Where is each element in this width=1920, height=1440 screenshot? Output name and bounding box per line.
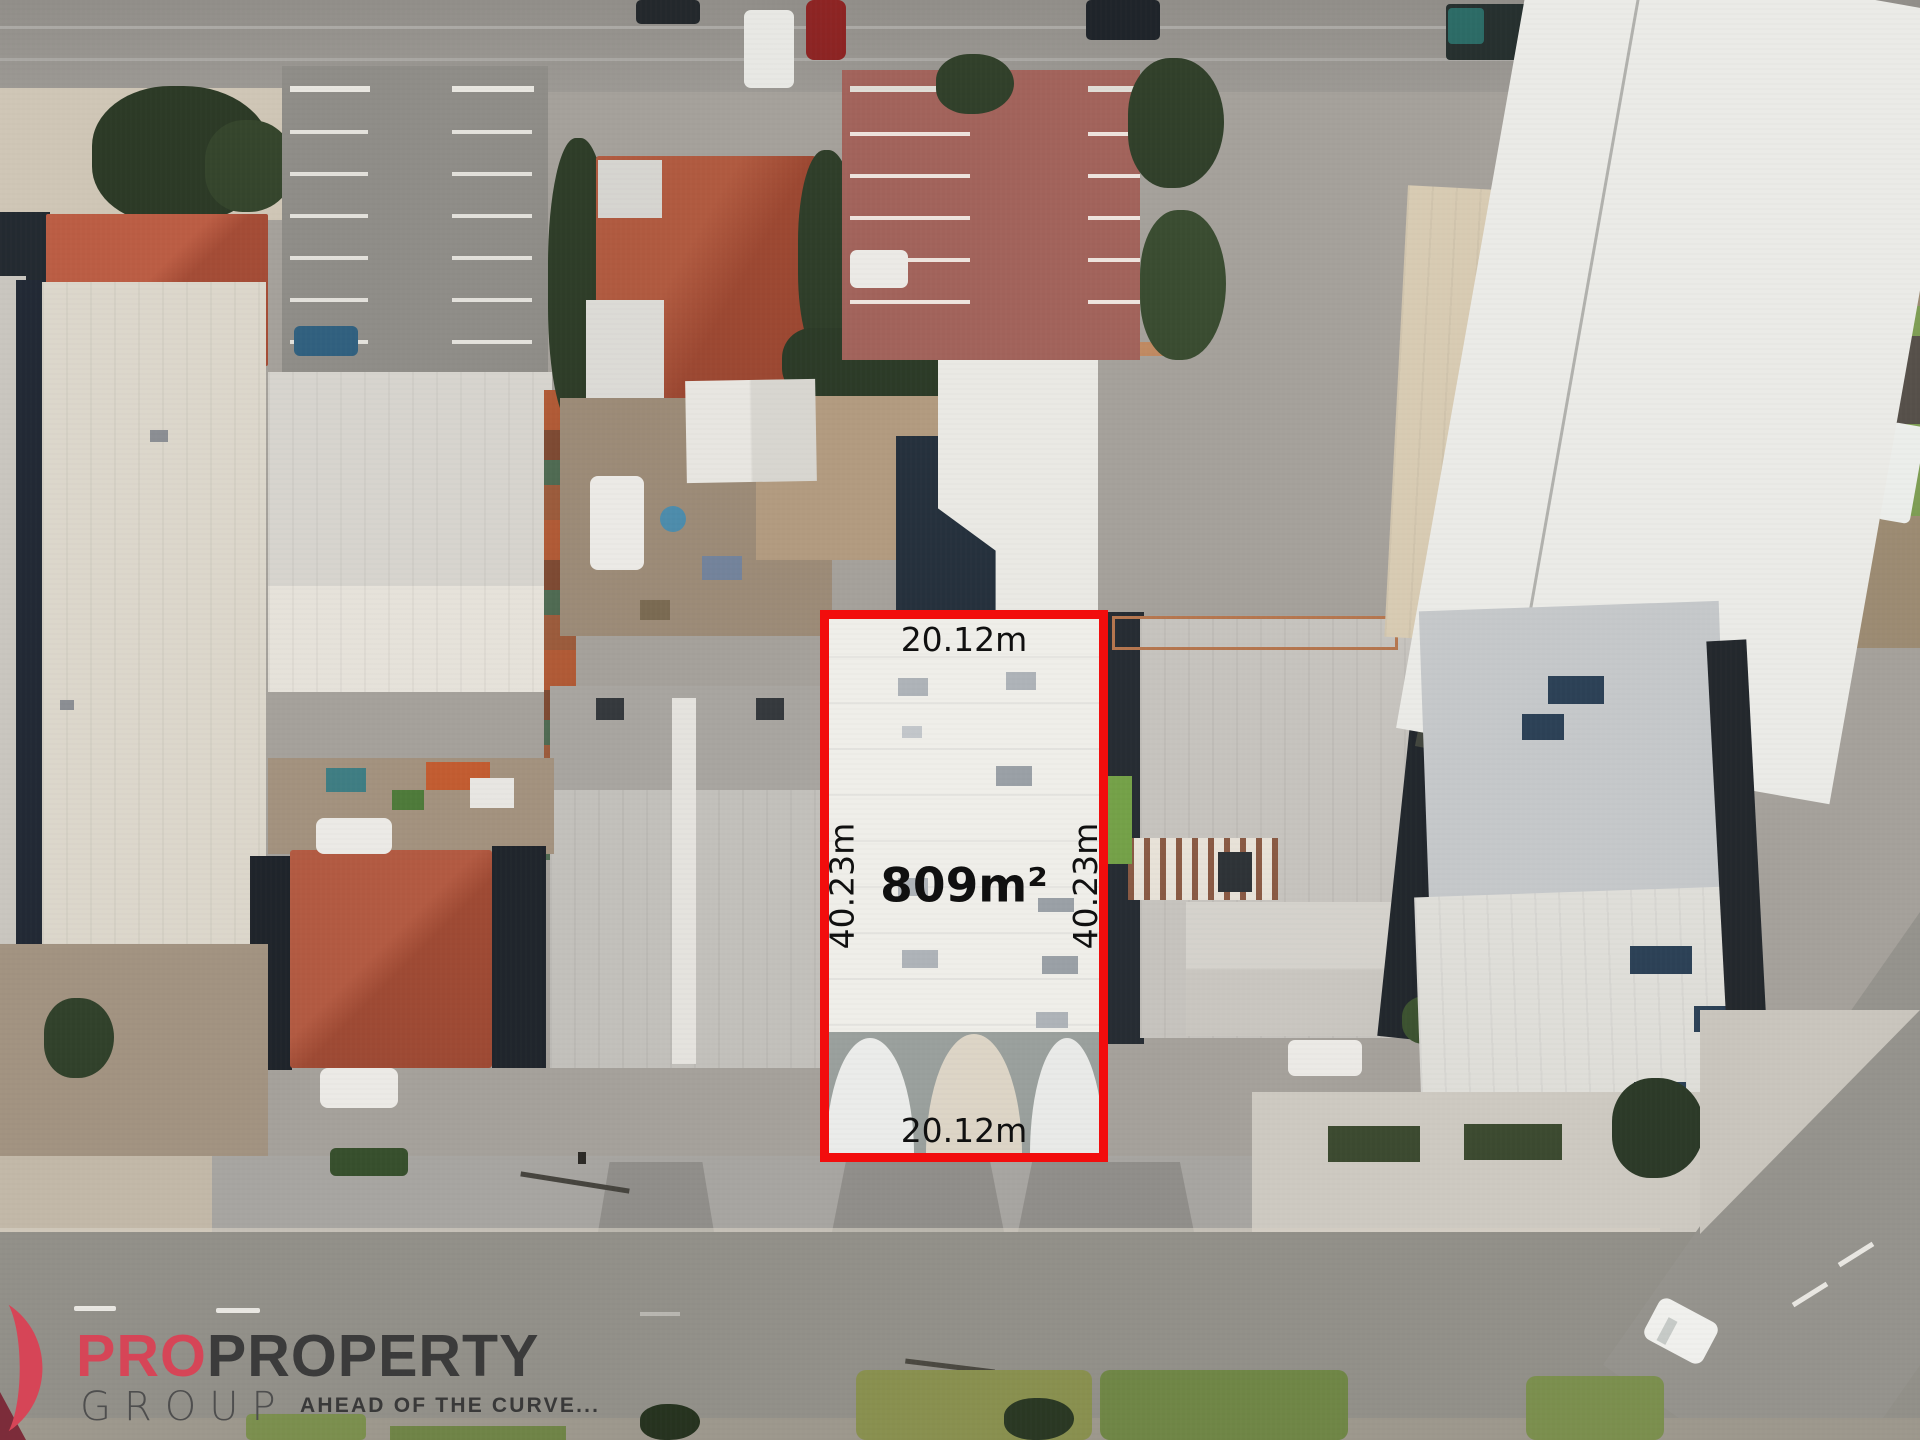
power-pole [578,1152,586,1164]
brand-swoosh-icon [0,1290,52,1440]
road-dash [216,1308,260,1313]
white-car [320,1068,398,1108]
grass-island [390,1426,566,1440]
yard-clutter [640,600,670,620]
roof-vent [756,698,784,720]
ladder-stripe-roof [1128,838,1278,900]
tile-roof [290,850,492,1068]
grass-island [1526,1376,1664,1440]
pool-trampoline [660,506,686,532]
brand-property-text: PROPERTY [207,1323,540,1389]
dimension-label-top: 20.12m [829,620,1099,659]
dimension-label-right: 40.23m [1067,823,1106,950]
road-dash [640,1312,680,1316]
aerial-photo: 20.12m 20.12m 40.23m 40.23m 809m² PROPRO… [0,0,1920,1440]
tree-canopy [1128,58,1224,188]
white-car [850,250,908,288]
roof-vent [60,700,74,710]
garage-gable-roof [685,379,817,483]
solar-panel [1522,714,1564,740]
roof-shadow [492,846,546,1068]
dirt-yard [0,944,268,1160]
white-car [1288,1040,1362,1076]
parking-stripes [452,92,532,358]
dimension-label-left: 40.23m [823,823,862,950]
brand-pro-text: PRO [76,1323,207,1389]
property-boundary-outline: 20.12m 20.12m 40.23m 40.23m 809m² [820,610,1108,1162]
sidewalk-beige [0,1156,212,1232]
warehouse-roof [42,282,266,946]
brand-wordmark: PROPROPERTY [76,1322,539,1390]
warehouse-shadow-stripe [16,280,44,946]
truck-cab [1448,8,1484,44]
area-label: 809m² [880,859,1048,914]
brand-tagline: AHEAD OF THE CURVE... [300,1394,600,1418]
driveway-apron [1018,1162,1194,1232]
tree-canopy [1140,210,1226,360]
white-van [590,476,644,570]
solar-panel [1630,946,1692,974]
tree-canopy [1004,1398,1074,1440]
yard-clutter [470,778,514,808]
terracotta-trim [1112,616,1398,650]
warehouse-roof-blue-tone [1419,601,1729,911]
white-van [744,10,794,88]
white-car [316,818,392,854]
palm-tree-canopy [44,998,114,1078]
tree-canopy [936,54,1014,114]
yard-clutter [702,556,742,580]
driveway-apron [598,1162,714,1232]
roof-seam-column [672,698,696,1064]
tree-canopy [1612,1078,1704,1178]
warehouse-roof [268,586,552,692]
red-car [806,0,846,60]
tree-canopy [640,1404,700,1440]
blue-car [294,326,358,356]
grass-island [1100,1370,1348,1440]
yard-clutter [392,790,424,810]
parking-stripes [290,92,368,358]
yard-clutter [326,768,366,792]
parking-stripes [850,94,970,326]
parked-dark-car [636,0,700,24]
warehouse-roof [268,372,552,586]
solar-panel [1548,676,1604,704]
parked-dark-car [1086,0,1160,40]
planter-box [1328,1126,1420,1162]
driveway-apron [832,1162,1004,1232]
hedge [330,1148,408,1176]
white-sub-roof [586,300,664,400]
roof-vent [596,698,624,720]
white-roof-box [598,160,662,218]
brand-group-text: GROUP [80,1384,289,1430]
roof-vent [1218,852,1252,892]
road-dash [74,1306,116,1311]
roof-vent [150,430,168,442]
planter-box [1464,1124,1562,1160]
dimension-label-bottom: 20.12m [829,1111,1099,1150]
